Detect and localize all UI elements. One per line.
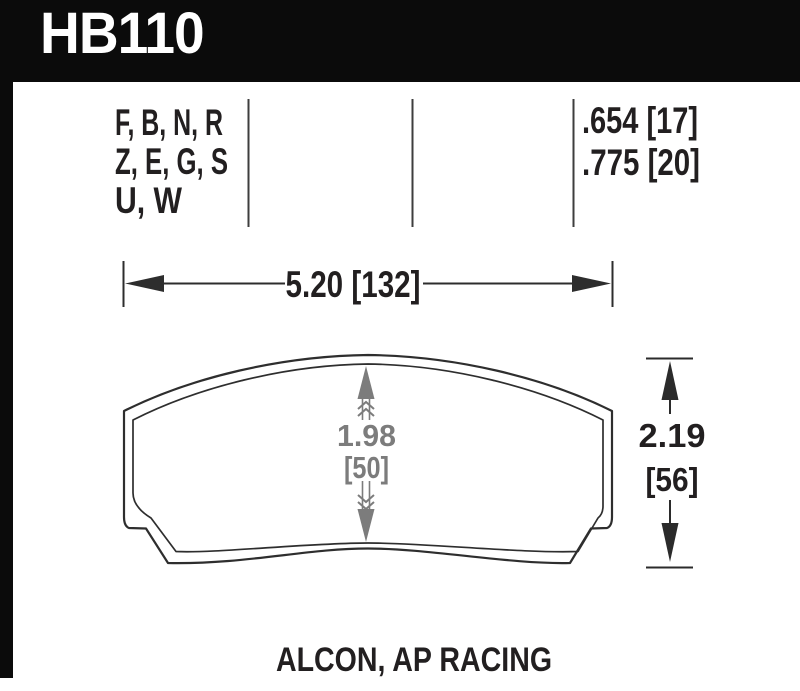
- applications-label: ALCON, AP RACING: [276, 643, 552, 677]
- overall-height-mm-label: [56]: [646, 461, 699, 498]
- overall-height-dimension: 2.19 [56]: [639, 359, 706, 568]
- column-dividers: [249, 99, 574, 227]
- height-arrowhead-down: [662, 523, 679, 562]
- center-height-dimension: 1.98 [50]: [337, 366, 396, 542]
- center-arrowhead-down: [358, 509, 375, 542]
- dimension-drawing: F, B, N, R Z, E, G, S U, W .654 [17] .77…: [0, 0, 800, 691]
- width-arrowhead-left: [125, 275, 164, 292]
- width-dimension: 5.20 [132]: [124, 261, 613, 307]
- width-arrowhead-right: [572, 275, 611, 292]
- pad-thickness-values: .654 [17] .775 [20]: [582, 100, 700, 183]
- compound-codes-line-3: U, W: [115, 180, 182, 221]
- thickness-value-1: .654 [17]: [582, 100, 698, 141]
- overall-height-inches-label: 2.19: [639, 417, 706, 454]
- compound-codes-line-2: Z, E, G, S: [115, 141, 228, 182]
- center-chevron-up-2: [358, 409, 374, 416]
- center-height-inches-label: 1.98: [337, 418, 396, 453]
- width-dimension-label: 5.20 [132]: [286, 264, 421, 305]
- center-height-mm-label: [50]: [344, 450, 389, 485]
- center-arrowhead-up: [358, 366, 375, 399]
- catalog-page: HB110 F, B, N, R Z, E, G, S U, W .654 [1…: [0, 0, 800, 691]
- compound-codes: F, B, N, R Z, E, G, S U, W: [115, 102, 228, 221]
- height-arrowhead-up: [662, 361, 679, 400]
- center-chevron-down-2: [358, 495, 374, 502]
- compound-codes-line-1: F, B, N, R: [115, 102, 223, 143]
- thickness-value-2: .775 [20]: [582, 142, 700, 183]
